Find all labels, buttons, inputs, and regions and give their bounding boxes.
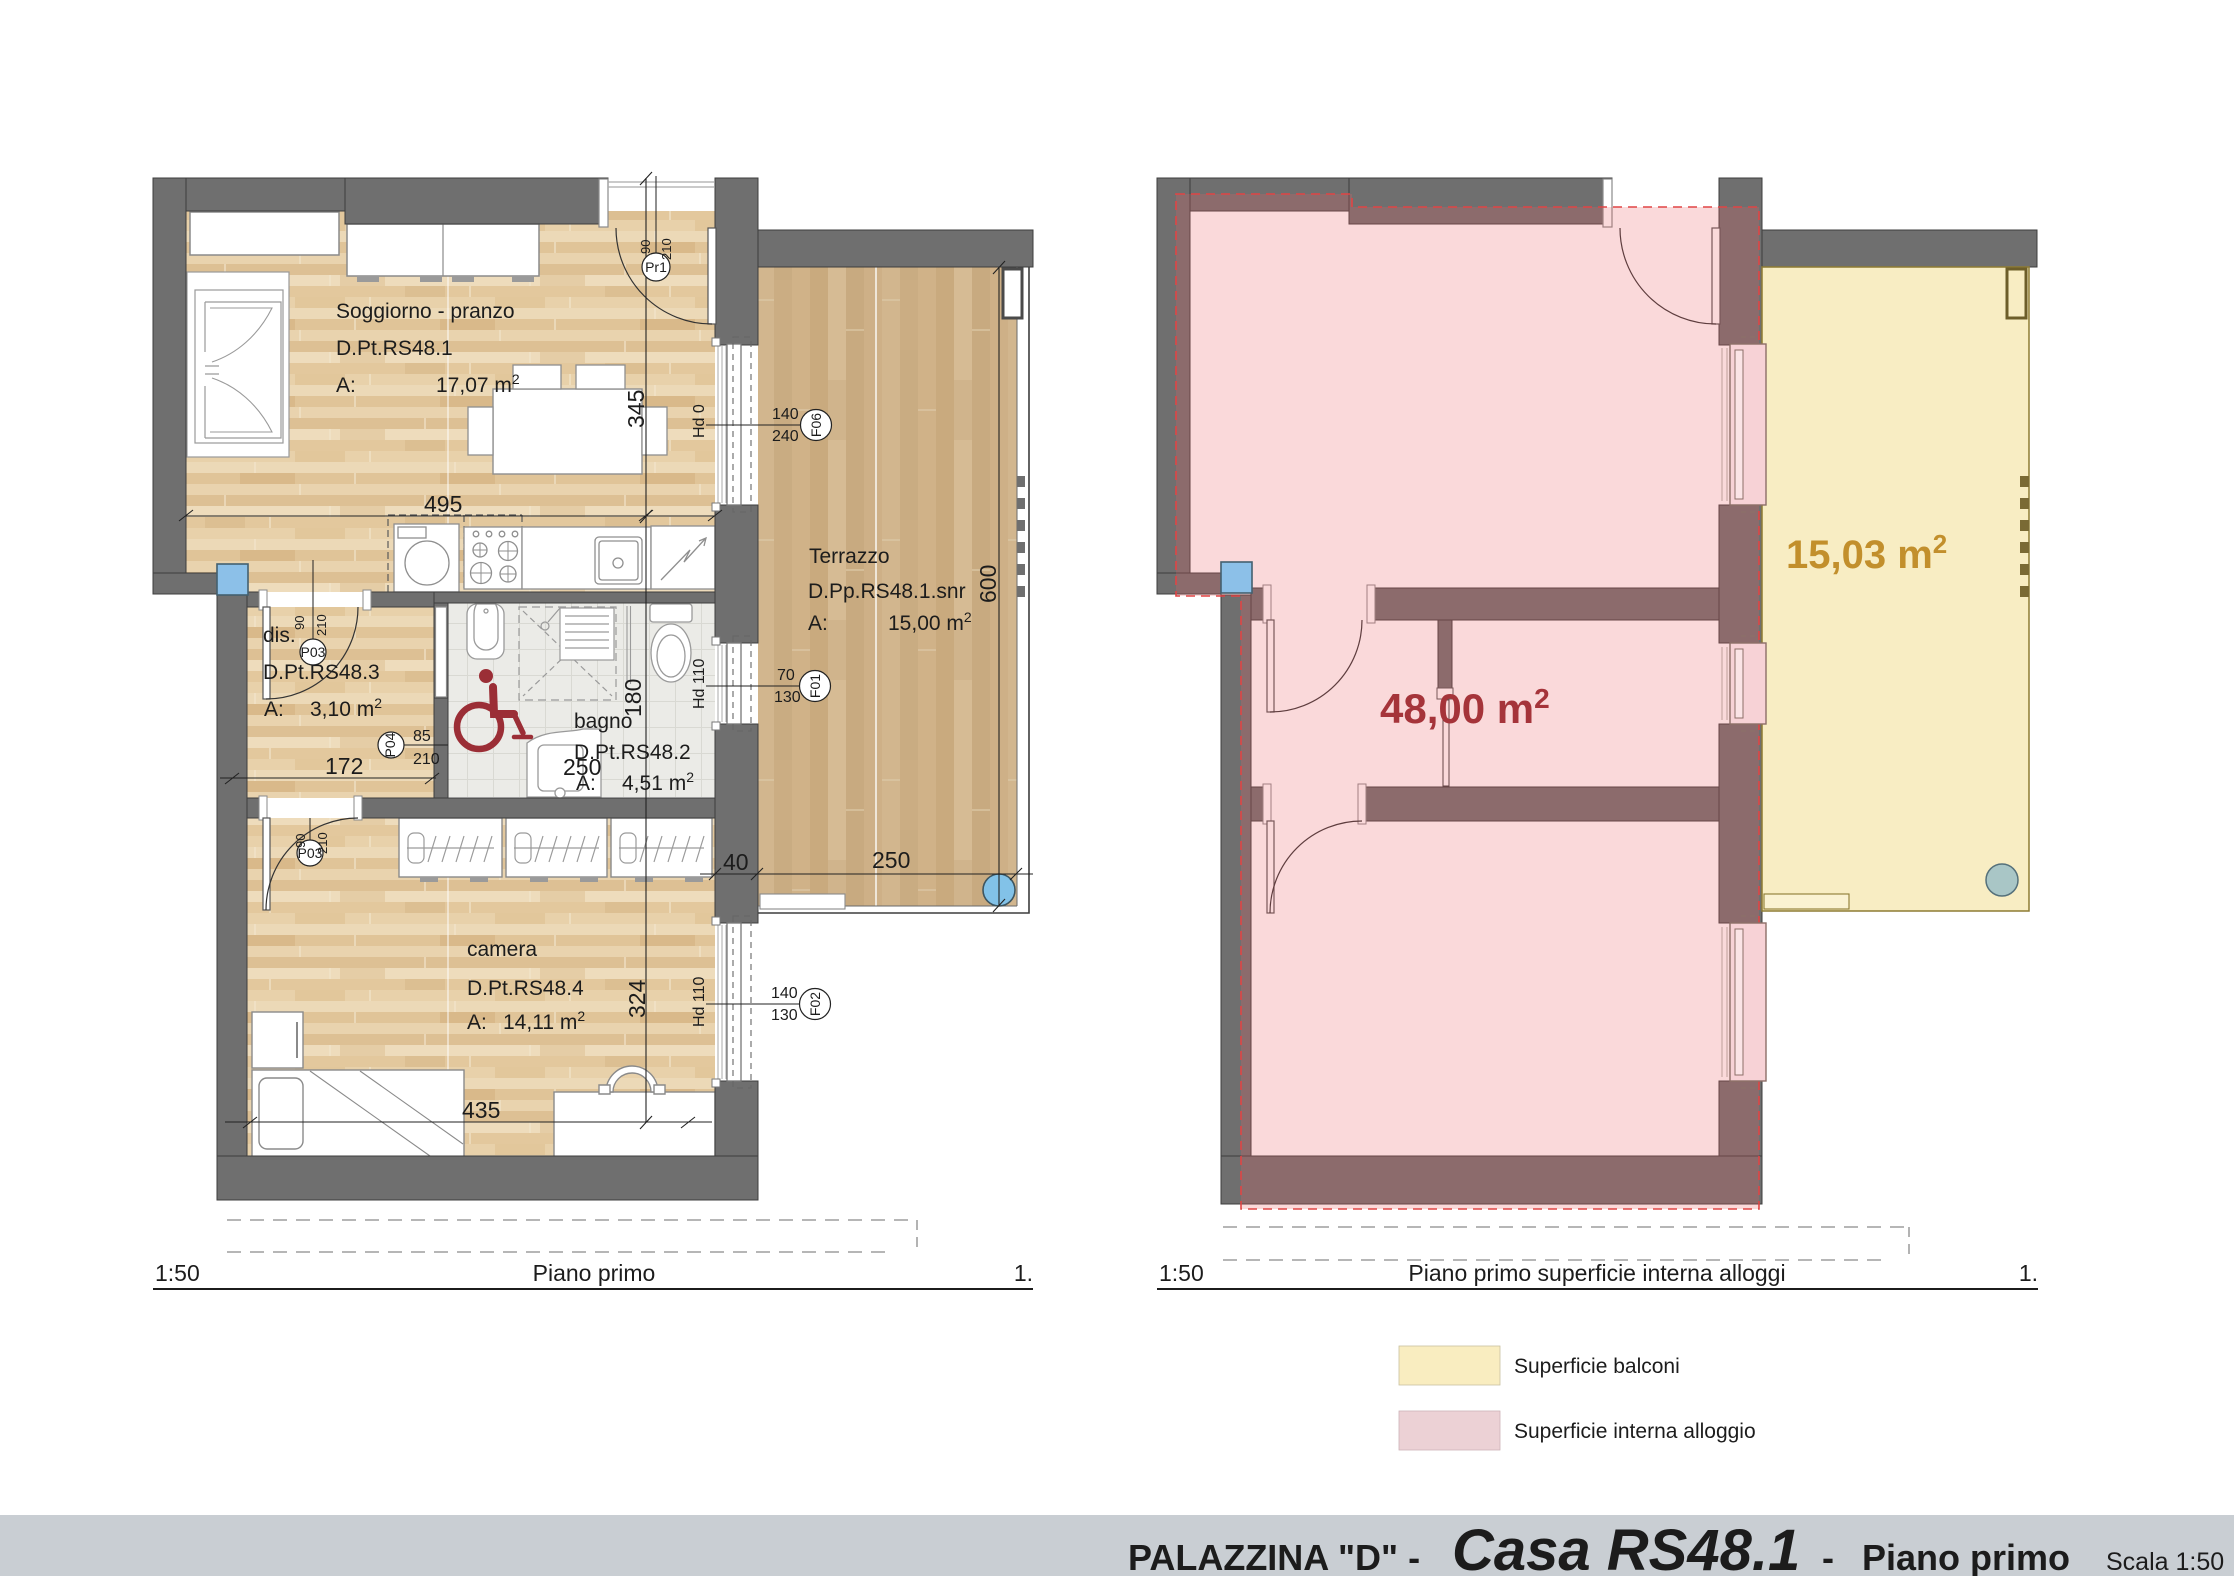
svg-text:A:: A: (467, 1011, 487, 1034)
svg-text:Casa RS48.1: Casa RS48.1 (1452, 1518, 1800, 1576)
svg-text:Terrazzo: Terrazzo (809, 545, 890, 568)
svg-text:130: 130 (774, 689, 801, 706)
svg-text:600: 600 (975, 565, 1001, 603)
svg-text:15,00 m2: 15,00 m2 (888, 609, 972, 635)
svg-text:-: - (1822, 1537, 1834, 1576)
svg-text:Superficie interna alloggio: Superficie interna alloggio (1514, 1420, 1756, 1443)
svg-text:A:: A: (336, 374, 356, 397)
svg-text:172: 172 (325, 753, 363, 779)
svg-text:435: 435 (462, 1097, 500, 1123)
svg-text:210: 210 (315, 832, 330, 854)
svg-text:210: 210 (413, 751, 440, 768)
svg-text:1.: 1. (2019, 1260, 2038, 1286)
svg-text:250: 250 (872, 847, 910, 873)
svg-text:324: 324 (624, 979, 650, 1018)
svg-text:3,10 m2: 3,10 m2 (310, 695, 382, 721)
svg-text:240: 240 (772, 428, 799, 445)
svg-text:495: 495 (424, 491, 462, 517)
svg-text:camera: camera (467, 938, 537, 961)
svg-text:15,03 m2: 15,03 m2 (1786, 529, 1947, 577)
svg-text:Hd 0: Hd 0 (691, 404, 708, 438)
svg-text:Piano primo superficie interna: Piano primo superficie interna alloggi (1408, 1260, 1785, 1286)
svg-text:Pr1: Pr1 (645, 259, 667, 275)
svg-text:14,11 m2: 14,11 m2 (503, 1008, 585, 1034)
svg-text:A:: A: (576, 772, 596, 795)
svg-text:P04: P04 (382, 732, 398, 757)
svg-text:345: 345 (623, 390, 649, 428)
svg-text:1.: 1. (1014, 1260, 1033, 1286)
svg-text:F06: F06 (808, 413, 824, 437)
svg-text:Hd 110: Hd 110 (691, 976, 708, 1027)
svg-text:Soggiorno - pranzo: Soggiorno - pranzo (336, 300, 515, 323)
svg-text:90: 90 (638, 240, 653, 254)
svg-text:D.Pt.RS48.1: D.Pt.RS48.1 (336, 337, 453, 360)
svg-text:40: 40 (723, 849, 749, 875)
svg-text:D.Pp.RS48.1.snr: D.Pp.RS48.1.snr (808, 580, 966, 603)
svg-text:85: 85 (413, 728, 431, 745)
svg-text:70: 70 (777, 667, 795, 684)
svg-text:140: 140 (772, 406, 799, 423)
svg-text:4,51 m2: 4,51 m2 (622, 769, 694, 795)
svg-text:A:: A: (264, 698, 284, 721)
svg-text:1:50: 1:50 (1159, 1260, 1204, 1286)
svg-text:130: 130 (771, 1007, 798, 1024)
svg-text:210: 210 (659, 238, 674, 260)
svg-text:180: 180 (620, 679, 646, 717)
svg-text:1:50: 1:50 (155, 1260, 200, 1286)
svg-text:Piano primo: Piano primo (533, 1260, 656, 1286)
svg-text:Scala 1:50: Scala 1:50 (2106, 1548, 2224, 1576)
svg-text:P03: P03 (301, 644, 326, 660)
svg-text:D.Pt.RS48.3: D.Pt.RS48.3 (263, 661, 380, 684)
svg-text:210: 210 (314, 614, 329, 636)
svg-text:Hd 110: Hd 110 (691, 658, 708, 709)
svg-text:Superficie balconi: Superficie balconi (1514, 1355, 1680, 1378)
svg-text:Piano primo: Piano primo (1862, 1537, 2070, 1576)
svg-text:F02: F02 (807, 992, 823, 1016)
svg-text:D.Pt.RS48.4: D.Pt.RS48.4 (467, 977, 584, 1000)
svg-text:F01: F01 (807, 674, 823, 698)
svg-text:dis.: dis. (263, 624, 296, 647)
svg-text:90: 90 (293, 834, 308, 848)
svg-text:PALAZZINA "D" -: PALAZZINA "D" - (1128, 1537, 1420, 1576)
svg-text:17,07 m2: 17,07 m2 (436, 371, 520, 397)
svg-text:48,00 m2: 48,00 m2 (1380, 683, 1550, 733)
svg-text:A:: A: (808, 612, 828, 635)
svg-text:140: 140 (771, 985, 798, 1002)
